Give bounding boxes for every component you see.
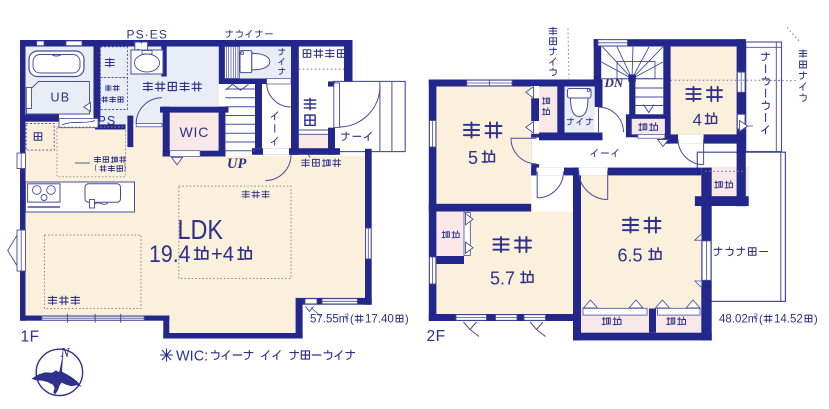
- svg-text:PS·ES: PS·ES: [127, 28, 169, 42]
- svg-text:WIC:: WIC:: [176, 349, 208, 365]
- svg-text:14.52: 14.52: [774, 314, 803, 326]
- svg-text:5.7: 5.7: [490, 269, 515, 289]
- svg-text:2F: 2F: [427, 328, 446, 345]
- svg-text:6.5: 6.5: [618, 246, 643, 266]
- svg-text:N: N: [60, 345, 71, 360]
- svg-text:UB: UB: [51, 91, 71, 105]
- svg-text:+4: +4: [211, 242, 234, 266]
- svg-text:): ): [814, 314, 818, 326]
- svg-text:19.4: 19.4: [149, 241, 191, 268]
- svg-text:UP: UP: [227, 156, 246, 172]
- svg-text:48.02m: 48.02m: [719, 314, 757, 326]
- svg-text:57.55m: 57.55m: [310, 314, 348, 326]
- svg-text:1F: 1F: [21, 329, 40, 346]
- svg-text:4: 4: [693, 111, 702, 130]
- svg-text:): ): [405, 314, 409, 326]
- svg-text:2: 2: [754, 312, 758, 321]
- svg-text:(: (: [759, 314, 763, 326]
- svg-text:PS: PS: [98, 114, 117, 128]
- svg-text:(: (: [350, 314, 354, 326]
- svg-text:2: 2: [345, 312, 349, 321]
- svg-text:WIC: WIC: [180, 124, 210, 140]
- svg-text:17.40: 17.40: [365, 314, 394, 326]
- svg-text:DN: DN: [604, 75, 624, 90]
- svg-text:5: 5: [468, 148, 478, 168]
